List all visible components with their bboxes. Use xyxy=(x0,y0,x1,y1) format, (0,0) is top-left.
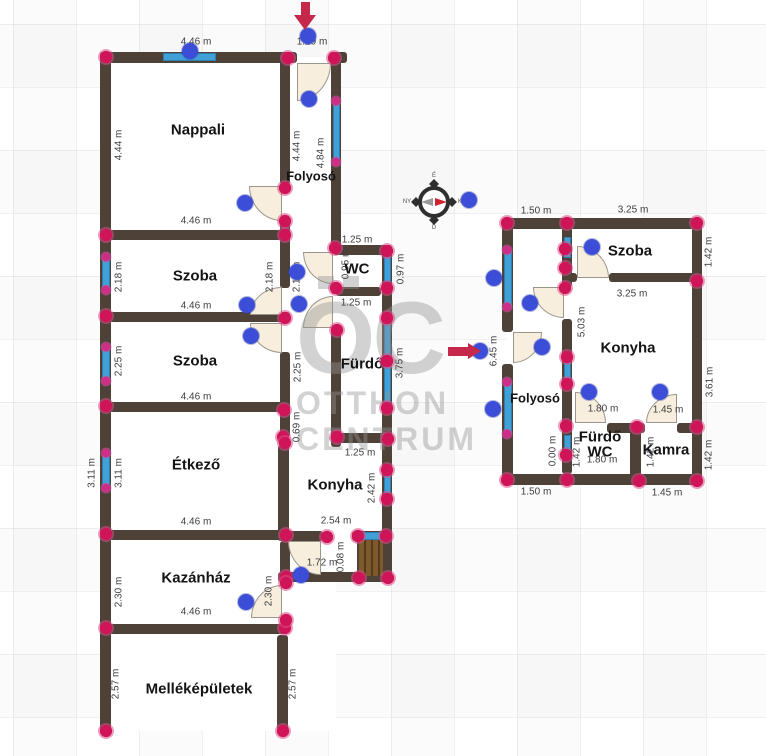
corner-handle-dot[interactable] xyxy=(277,180,293,196)
measurement-label: 4.44 m xyxy=(292,131,303,162)
measurement-label: 4.46 m xyxy=(181,517,212,528)
measurement-label: 2.18 m xyxy=(114,262,125,293)
corner-handle-dot[interactable] xyxy=(98,526,114,542)
wall-segment xyxy=(692,218,702,485)
element-handle-dot[interactable] xyxy=(293,567,309,583)
corner-handle-dot[interactable] xyxy=(98,398,114,414)
element-handle-dot[interactable] xyxy=(301,91,317,107)
corner-handle-dot[interactable] xyxy=(326,50,342,66)
corner-handle-dot[interactable] xyxy=(379,400,395,416)
measurement-label: 1.72 m xyxy=(307,558,338,569)
wall-segment xyxy=(280,52,290,185)
corner-handle-dot[interactable] xyxy=(98,49,114,65)
corner-handle-dot[interactable] xyxy=(631,473,647,489)
compass-label-south: D xyxy=(432,225,436,231)
corner-handle-dot[interactable] xyxy=(351,570,367,586)
corner-handle-dot[interactable] xyxy=(558,447,574,463)
wall-segment xyxy=(100,624,288,634)
corner-handle-dot[interactable] xyxy=(379,310,395,326)
room-label: Kazánház xyxy=(161,570,230,587)
corner-handle-dot[interactable] xyxy=(557,280,573,296)
corner-handle-dot[interactable] xyxy=(98,227,114,243)
measurement-label: 1.42 m xyxy=(704,237,715,268)
window-handle-dot[interactable] xyxy=(101,342,112,353)
element-handle-dot[interactable] xyxy=(485,401,501,417)
measurement-label: 2.30 m xyxy=(264,576,275,607)
corner-handle-dot[interactable] xyxy=(98,620,114,636)
floorplan-canvas: OC OTTHON CENTRUM 4.46 m1.29 m4.46 m4.46… xyxy=(0,0,766,756)
measurement-label: 2.30 m xyxy=(114,577,125,608)
element-handle-dot[interactable] xyxy=(237,195,253,211)
corner-handle-dot[interactable] xyxy=(557,260,573,276)
element-handle-dot[interactable] xyxy=(289,264,305,280)
window-handle-dot[interactable] xyxy=(502,429,513,440)
corner-handle-dot[interactable] xyxy=(499,472,515,488)
window xyxy=(333,103,340,162)
corner-handle-dot[interactable] xyxy=(689,273,705,289)
measurement-label: 3.11 m xyxy=(114,458,125,488)
window-handle-dot[interactable] xyxy=(331,157,342,168)
window xyxy=(384,365,391,405)
corner-handle-dot[interactable] xyxy=(380,570,396,586)
measurement-label: 4.46 m xyxy=(181,607,212,618)
measurement-label: 5.03 m xyxy=(577,307,588,338)
compass-label-east: K xyxy=(458,199,462,205)
corner-handle-dot[interactable] xyxy=(319,529,335,545)
measurement-label: 3.11 m xyxy=(87,458,98,488)
corner-handle-dot[interactable] xyxy=(558,418,574,434)
measurement-label: 3.75 m xyxy=(395,348,406,379)
corner-handle-dot[interactable] xyxy=(278,575,294,591)
measurement-label: 1.42 m xyxy=(704,440,715,471)
measurement-label: 0.00 m xyxy=(548,436,559,467)
room-label: Melléképületek xyxy=(146,681,253,698)
wall-segment xyxy=(502,474,702,485)
room-label: Kamra xyxy=(643,442,690,459)
measurement-label: 1.25 m xyxy=(341,298,372,309)
corner-handle-dot[interactable] xyxy=(559,349,575,365)
corner-handle-dot[interactable] xyxy=(379,280,395,296)
measurement-label: 1.80 m xyxy=(588,404,619,415)
window-handle-dot[interactable] xyxy=(502,245,513,256)
corner-handle-dot[interactable] xyxy=(98,723,114,739)
corner-handle-dot[interactable] xyxy=(380,431,396,447)
wall-segment xyxy=(277,635,288,731)
window-handle-dot[interactable] xyxy=(101,448,112,459)
measurement-label: 2.18 m xyxy=(265,262,276,293)
measurement-label: 4.46 m xyxy=(181,216,212,227)
wall-segment xyxy=(100,530,290,540)
corner-handle-dot[interactable] xyxy=(689,419,705,435)
measurement-label: 4.46 m xyxy=(181,301,212,312)
room-label: Konyha xyxy=(600,340,655,357)
room-label: Étkező xyxy=(172,457,220,474)
measurement-label: 0.08 m xyxy=(336,542,347,573)
corner-handle-dot[interactable] xyxy=(277,213,293,229)
measurement-label: 2.25 m xyxy=(293,352,304,383)
corner-handle-dot[interactable] xyxy=(277,310,293,326)
measurement-label: 1.25 m xyxy=(342,235,373,246)
window-handle-dot[interactable] xyxy=(101,285,112,296)
window-handle-dot[interactable] xyxy=(331,96,342,107)
corner-handle-dot[interactable] xyxy=(559,472,575,488)
element-handle-dot[interactable] xyxy=(291,296,307,312)
wall-segment xyxy=(280,352,290,437)
corner-handle-dot[interactable] xyxy=(276,402,292,418)
measurement-label: 4.46 m xyxy=(181,392,212,403)
corner-handle-dot[interactable] xyxy=(689,473,705,489)
corner-handle-dot[interactable] xyxy=(328,280,344,296)
corner-handle-dot[interactable] xyxy=(379,353,395,369)
room-label: Szoba xyxy=(173,353,217,370)
corner-handle-dot[interactable] xyxy=(280,50,296,66)
element-handle-dot[interactable] xyxy=(522,295,538,311)
corner-handle-dot[interactable] xyxy=(499,215,515,231)
element-handle-dot[interactable] xyxy=(238,594,254,610)
element-handle-dot[interactable] xyxy=(461,192,477,208)
corner-handle-dot[interactable] xyxy=(275,723,291,739)
corner-handle-dot[interactable] xyxy=(350,528,366,544)
measurement-label: 1.50 m xyxy=(521,487,552,498)
measurement-label: 1.45 m xyxy=(653,405,684,416)
window xyxy=(504,251,512,308)
corner-handle-dot[interactable] xyxy=(557,241,573,257)
corner-handle-dot[interactable] xyxy=(379,243,395,259)
corner-handle-dot[interactable] xyxy=(379,491,395,507)
window-handle-dot[interactable] xyxy=(101,483,112,494)
element-handle-dot[interactable] xyxy=(581,384,597,400)
room-label: Szoba xyxy=(173,268,217,285)
corner-handle-dot[interactable] xyxy=(559,376,575,392)
room-label: Konyha xyxy=(307,477,362,494)
measurement-label: 1.25 m xyxy=(345,448,376,459)
room-label: WC xyxy=(588,444,613,461)
measurement-label: 6.45 m xyxy=(489,336,500,367)
measurement-label: 3.25 m xyxy=(617,289,648,300)
measurement-label: 2.54 m xyxy=(321,516,352,527)
room-label: Szoba xyxy=(608,243,652,260)
corner-handle-dot[interactable] xyxy=(329,429,345,445)
corner-handle-dot[interactable] xyxy=(327,240,343,256)
room-label: Fürdő xyxy=(341,356,384,373)
measurement-label: 4.44 m xyxy=(114,130,125,161)
compass-label-west: NY xyxy=(403,199,411,205)
room-label: Nappali xyxy=(171,122,225,139)
window-handle-dot[interactable] xyxy=(101,376,112,387)
wall-segment xyxy=(502,218,702,229)
element-handle-dot[interactable] xyxy=(534,339,550,355)
corner-handle-dot[interactable] xyxy=(329,322,345,338)
corner-handle-dot[interactable] xyxy=(629,419,645,435)
corner-handle-dot[interactable] xyxy=(277,435,293,451)
compass-needle-west xyxy=(421,198,433,206)
window-handle-dot[interactable] xyxy=(101,252,112,263)
corner-handle-dot[interactable] xyxy=(689,215,705,231)
element-handle-dot[interactable] xyxy=(243,328,259,344)
corner-handle-dot[interactable] xyxy=(98,308,114,324)
element-handle-dot[interactable] xyxy=(584,239,600,255)
measurement-label: 0.69 m xyxy=(292,412,303,443)
room-label: Folyosó xyxy=(510,391,560,406)
element-handle-dot[interactable] xyxy=(182,43,198,59)
measurement-label: 2.57 m xyxy=(288,669,299,700)
measurement-label: 2.57 m xyxy=(111,669,122,700)
corner-handle-dot[interactable] xyxy=(278,612,294,628)
corner-handle-dot[interactable] xyxy=(559,215,575,231)
corner-handle-dot[interactable] xyxy=(278,527,294,543)
corner-handle-dot[interactable] xyxy=(379,462,395,478)
measurement-label: 2.42 m xyxy=(367,473,378,504)
entrance-arrow-down-icon xyxy=(294,2,316,30)
element-handle-dot[interactable] xyxy=(652,384,668,400)
element-handle-dot[interactable] xyxy=(300,28,316,44)
measurement-label: 4.84 m xyxy=(316,138,327,169)
window-handle-dot[interactable] xyxy=(502,377,513,388)
measurement-label: 0.97 m xyxy=(396,254,407,285)
compass-label-north: É xyxy=(432,173,436,179)
window-handle-dot[interactable] xyxy=(502,302,513,313)
measurement-label: 3.25 m xyxy=(618,205,649,216)
corner-handle-dot[interactable] xyxy=(378,528,394,544)
element-handle-dot[interactable] xyxy=(239,297,255,313)
corner-handle-dot[interactable] xyxy=(277,227,293,243)
measurement-label: 3.61 m xyxy=(705,367,716,398)
measurement-label: 2.25 m xyxy=(114,346,125,377)
wall-segment xyxy=(100,230,290,240)
element-handle-dot[interactable] xyxy=(486,270,502,286)
measurement-label: 1.45 m xyxy=(652,488,683,499)
wall-segment xyxy=(100,402,290,412)
room-label: WC xyxy=(345,261,370,278)
measurement-label: 1.50 m xyxy=(521,206,552,217)
compass-needle-east xyxy=(435,198,447,206)
room-label: Folyosó xyxy=(286,169,336,184)
